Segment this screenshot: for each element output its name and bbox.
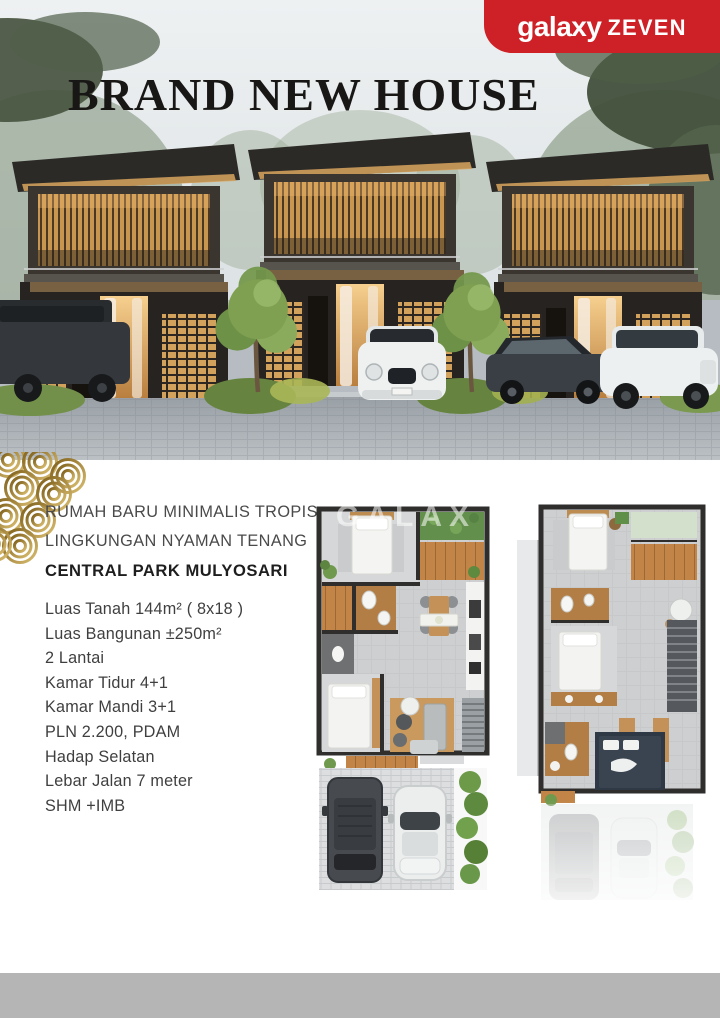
spec-luas-tanah: Luas Tanah 144m² ( 8x18 ) (45, 597, 243, 622)
specs-list: Luas Tanah 144m² ( 8x18 ) Luas Bangunan … (45, 597, 243, 818)
floorplan-first-floor (316, 506, 490, 890)
spec-hadap: Hadap Selatan (45, 745, 243, 770)
spec-kamar-mandi: Kamar Mandi 3+1 (45, 695, 243, 720)
footer-bar (0, 973, 720, 1018)
spec-lebar-jalan: Lebar Jalan 7 meter (45, 769, 243, 794)
spec-kamar-tidur: Kamar Tidur 4+1 (45, 671, 243, 696)
page-title: BRAND NEW HOUSE (68, 68, 668, 121)
headline-line-2: LINGKUNGAN NYAMAN TENANG (45, 527, 318, 556)
spec-luas-bangunan: Luas Bangunan ±250m² (45, 622, 243, 647)
headline-block: RUMAH BARU MINIMALIS TROPIS LINGKUNGAN N… (45, 498, 318, 585)
brand-logo-zeven: ZEVEN (607, 15, 686, 41)
spec-shm-imb: SHM +IMB (45, 794, 243, 819)
headline-line-3: CENTRAL PARK MULYOSARI (45, 556, 318, 585)
brand-logo-galaxy: galaxy (517, 11, 601, 43)
headline-line-1: RUMAH BARU MINIMALIS TROPIS (45, 498, 318, 527)
floorplan-second-floor (515, 504, 707, 906)
spec-pln-pdam: PLN 2.200, PDAM (45, 720, 243, 745)
brand-badge: galaxy ZEVEN (484, 0, 720, 53)
flyer-page: galaxy ZEVEN BRAND NEW HOUSE RUMAH BARU … (0, 0, 720, 1018)
mini-car (358, 326, 446, 400)
spec-lantai: 2 Lantai (45, 646, 243, 671)
